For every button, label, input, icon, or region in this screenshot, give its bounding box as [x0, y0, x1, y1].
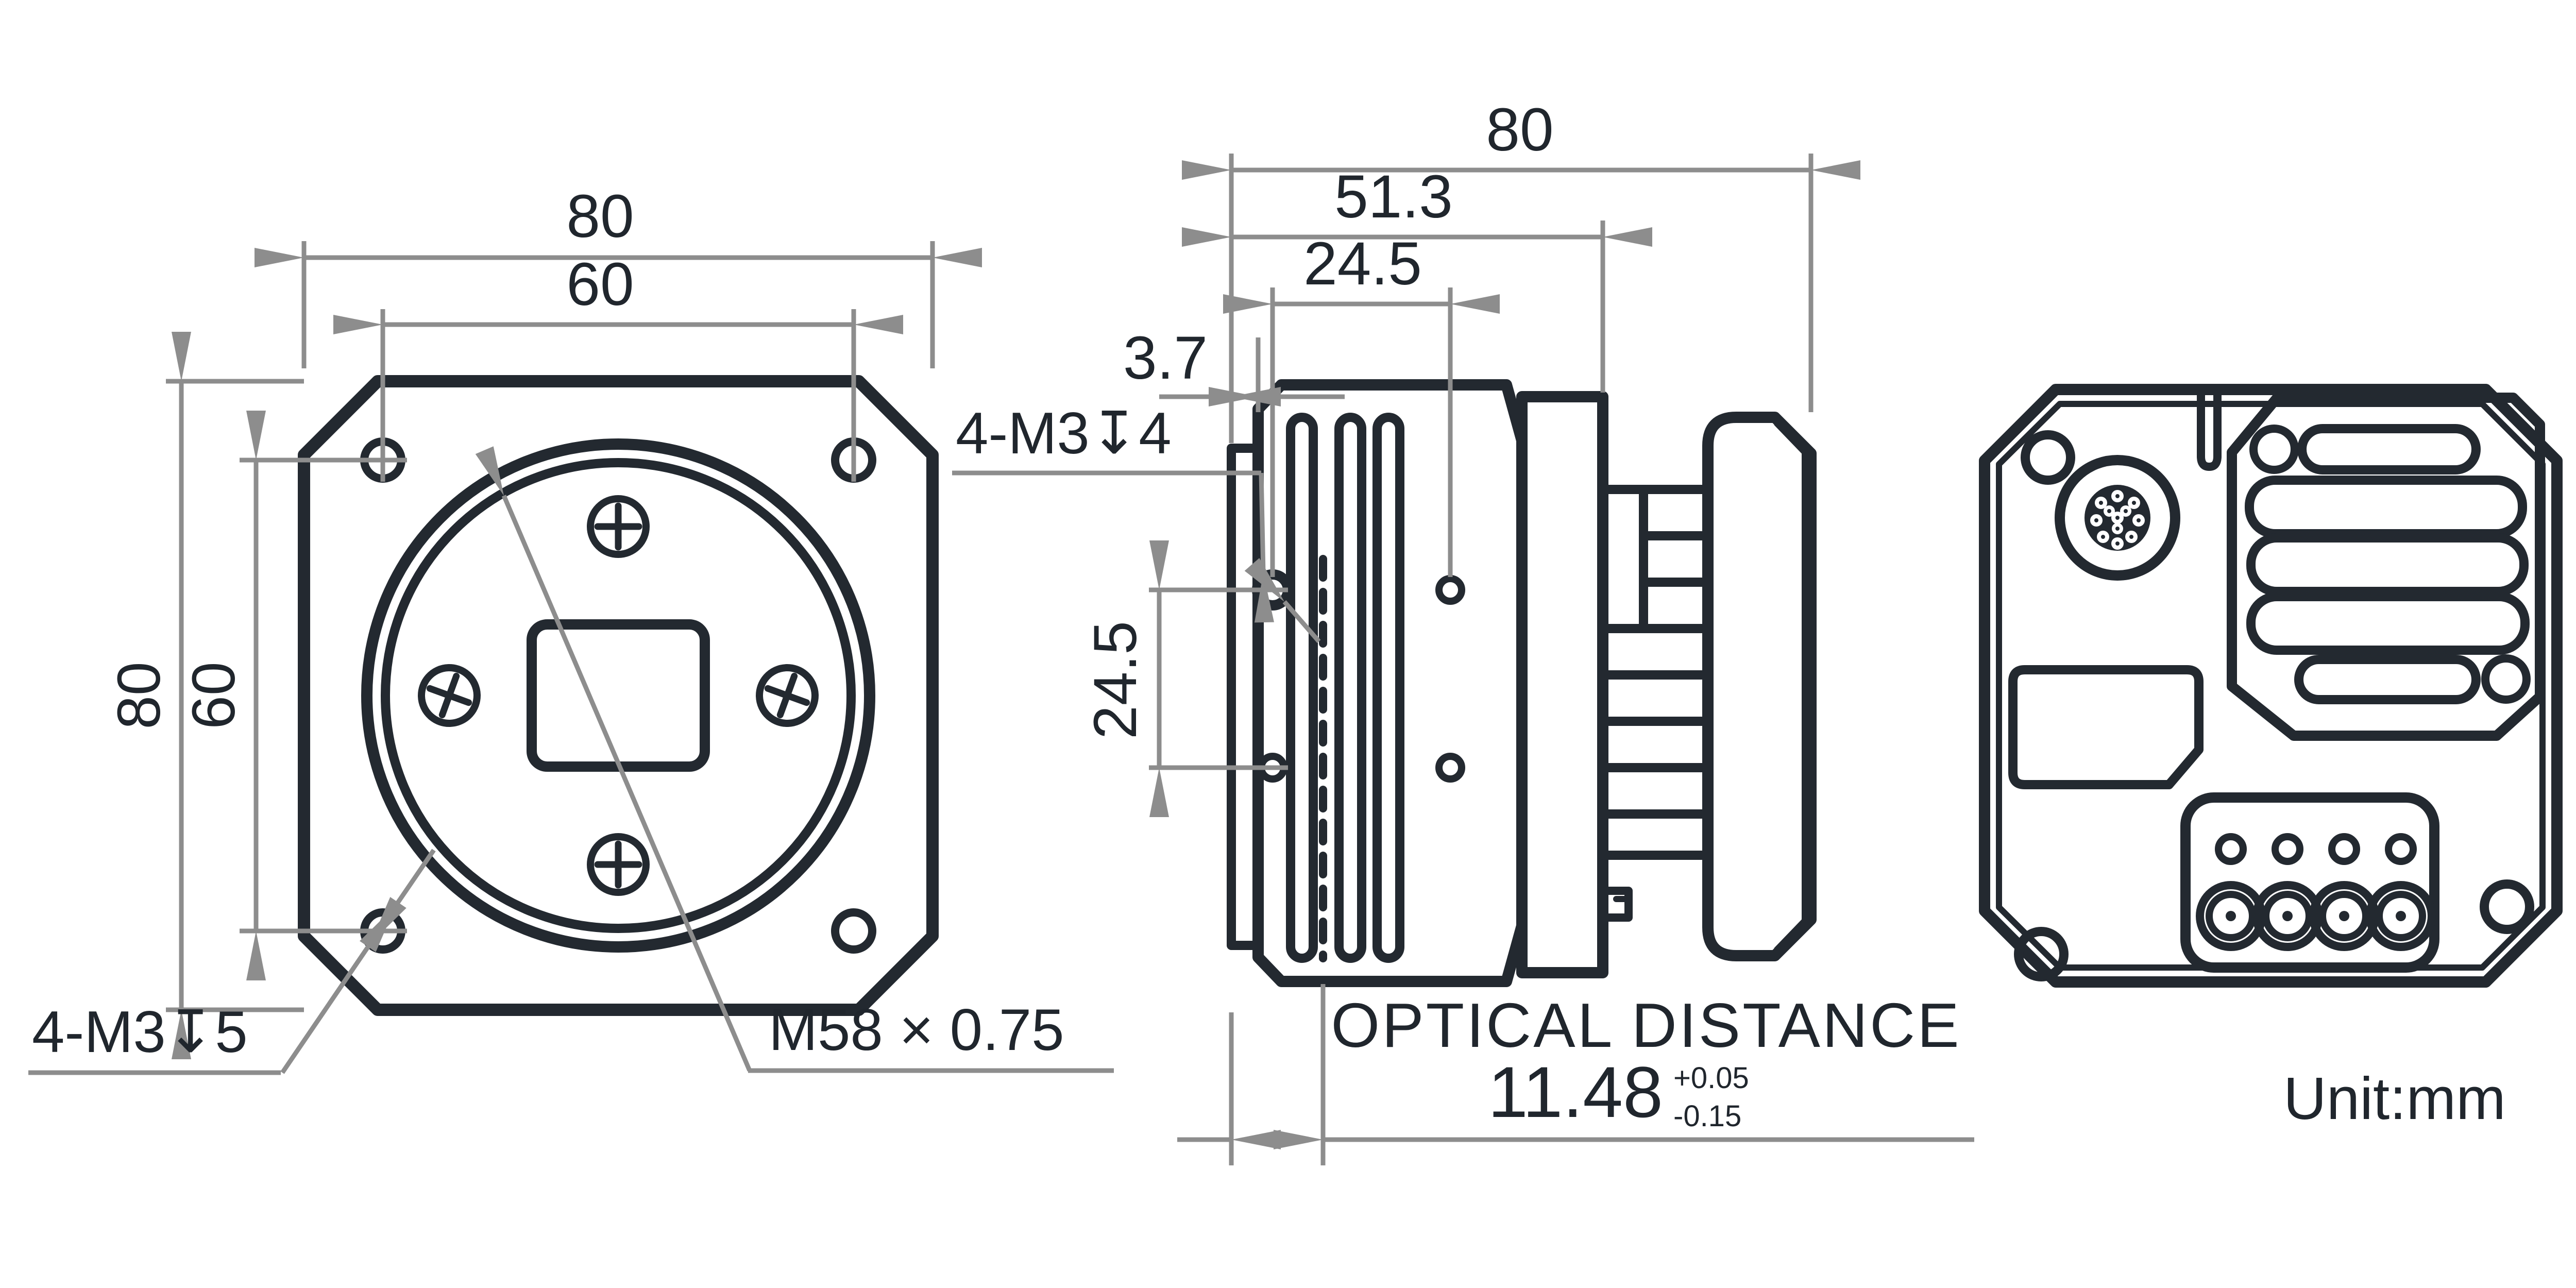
- indicator-leds: [2218, 837, 2413, 861]
- power-io-connector: [2060, 460, 2175, 575]
- front-view: 80 60 80 60 4-M3↧5: [28, 182, 1114, 1073]
- vent-slot-4: [2251, 597, 2525, 650]
- rear-view: [1985, 389, 2557, 982]
- vent-slot-1: [2302, 429, 2476, 470]
- front-screw-left: [414, 660, 485, 731]
- side-bottom-tab: [1603, 891, 1629, 918]
- front-note-corner-holes: 4-M3↧5: [28, 850, 434, 1073]
- side-hole-bottom-right: [1439, 756, 1462, 779]
- side-hole-top-right: [1439, 579, 1462, 601]
- optical-distance-tol-plus: +0.05: [1673, 1061, 1749, 1095]
- side-slot-3: [1377, 417, 1400, 958]
- front-screw-top: [590, 499, 646, 554]
- bottom-connector-panel: [2185, 798, 2434, 968]
- front-hole-bottom-right: [835, 912, 872, 950]
- front-note-lens-mount: M58 × 0.75: [504, 496, 1114, 1071]
- side-heatsink-fins: [1603, 489, 1708, 855]
- vent-screw-bottom-right: [2485, 658, 2527, 700]
- side-slot-2: [1339, 417, 1362, 958]
- vent-slot-2: [2249, 480, 2522, 534]
- optical-distance-value: 11.48: [1488, 1052, 1663, 1132]
- unit-label: Unit:mm: [2283, 1065, 2506, 1132]
- rear-hole-bottom-right: [2484, 884, 2530, 929]
- front-dim-outer-height-label: 80: [105, 662, 173, 729]
- side-dim-hole-spacing-label: 24.5: [1081, 621, 1149, 739]
- side-slot-1: [1291, 417, 1313, 958]
- side-dim-body-depth-label: 51.3: [1334, 163, 1453, 231]
- front-dim-hole-span-height-label: 60: [180, 662, 248, 729]
- optical-distance-title: OPTICAL DISTANCE: [1331, 990, 1961, 1060]
- side-end-block-inner-edge: [1777, 423, 1805, 950]
- rear-plate-inner-edge: [1999, 404, 2543, 968]
- front-note-corner-holes-label: 4-M3↧5: [32, 999, 248, 1065]
- front-dim-hole-span-height: 60: [180, 460, 407, 931]
- front-screw-right: [752, 660, 823, 731]
- side-note-holes-label: 4-M3↧4: [956, 401, 1172, 466]
- coax-connectors: [2200, 885, 2432, 947]
- vent-screw-top-left: [2253, 429, 2295, 470]
- side-dim-flange-label: 3.7: [1123, 324, 1208, 392]
- side-end-block: [1708, 417, 1811, 956]
- sensor-window: [532, 624, 705, 767]
- side-dim-total-depth-label: 80: [1486, 96, 1553, 164]
- camera-dimension-drawing: 80 60 80 60 4-M3↧5: [0, 0, 2576, 1288]
- side-dim-flange: 3.7: [1123, 324, 1345, 412]
- front-dim-hole-span-width-label: 60: [566, 250, 634, 318]
- side-rear-housing: [1522, 397, 1603, 973]
- vent-slot-5: [2299, 659, 2476, 700]
- drawing-page: 80 60 80 60 4-M3↧5: [0, 0, 2576, 1288]
- front-note-lens-mount-label: M58 × 0.75: [769, 997, 1064, 1063]
- side-view: 80 51.3 24.5 3.7 24.5: [952, 96, 1974, 1165]
- side-optical-distance: OPTICAL DISTANCE 11.48 +0.05 -0.15: [1177, 984, 1974, 1165]
- vent-panel: [2232, 398, 2540, 736]
- optical-distance-tol-minus: -0.15: [1673, 1099, 1741, 1133]
- side-body-outline: [1258, 385, 1522, 981]
- front-dim-outer-width-label: 80: [566, 182, 634, 250]
- label-plate: [2013, 670, 2199, 785]
- side-dim-hole-offset-label: 24.5: [1303, 230, 1422, 298]
- vent-slot-3: [2251, 538, 2524, 591]
- front-screw-bottom: [590, 837, 646, 892]
- rear-hole-top-left: [2025, 435, 2071, 480]
